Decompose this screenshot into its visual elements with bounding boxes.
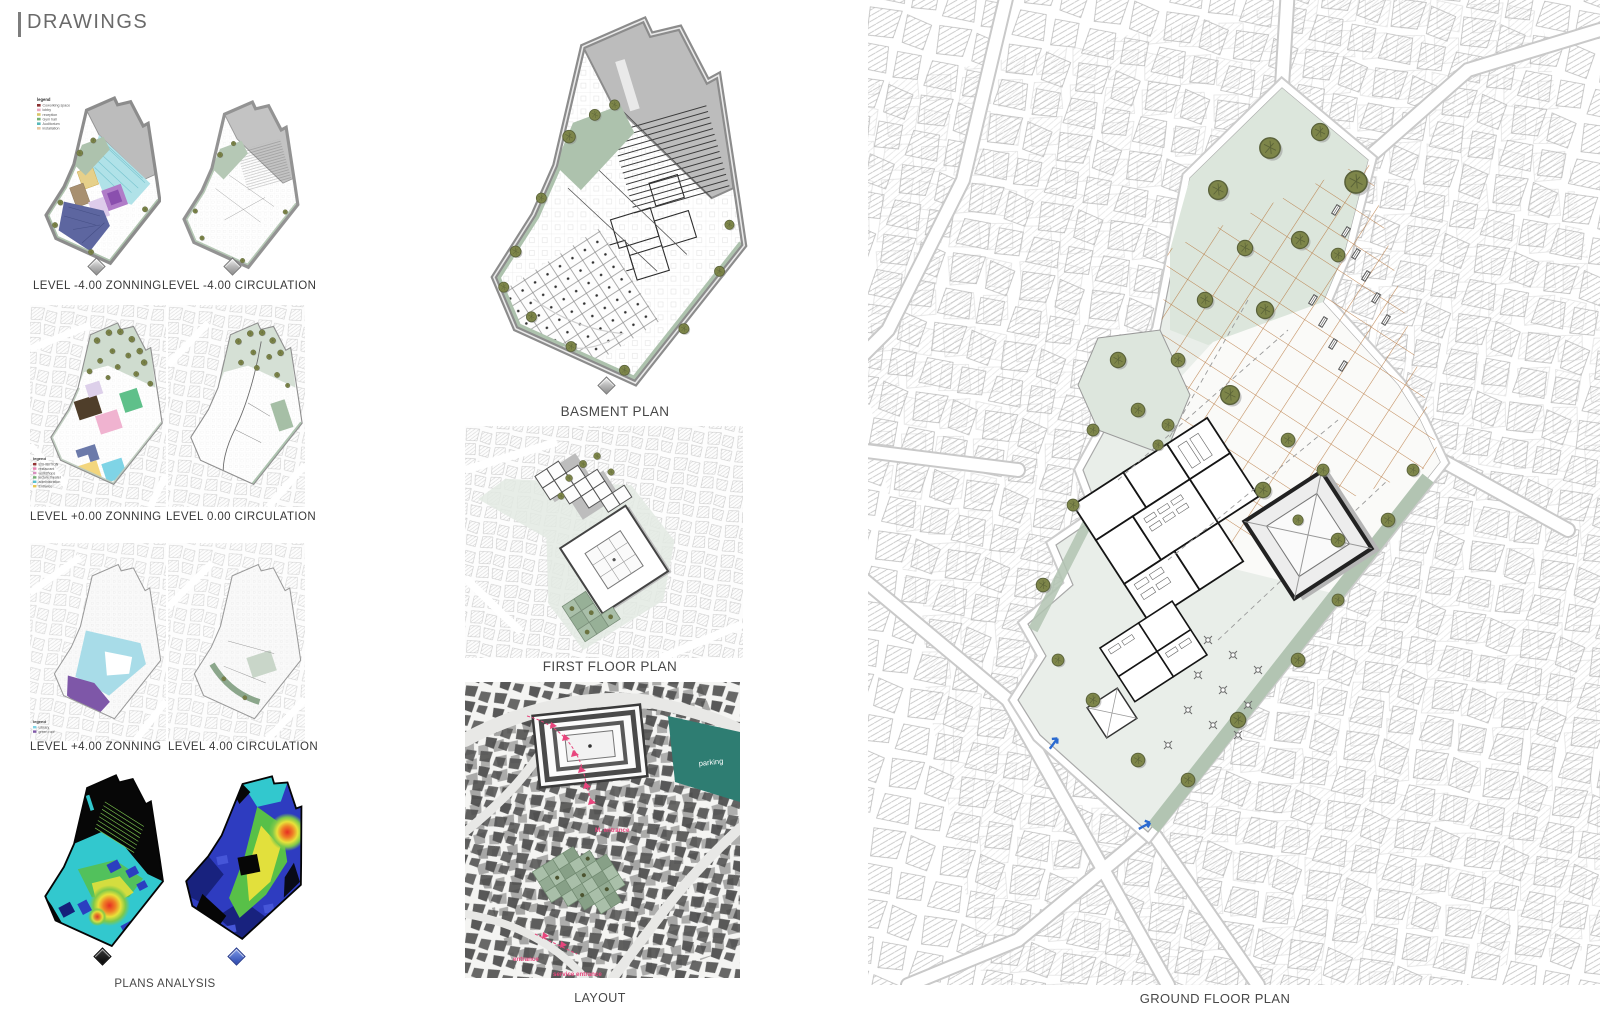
main-entrance-label: M. entrance: [595, 827, 630, 834]
legend-title: legend: [33, 456, 46, 461]
level-zero-circulation-plan: [168, 305, 305, 507]
caption-ground-floor-plan: GROUND FLOOR PLAN: [1080, 991, 1350, 1006]
legend-item-label: Entrance: [39, 485, 53, 489]
legend-chip: [37, 127, 41, 130]
legend-chip: [37, 104, 41, 107]
basement-plan: [468, 6, 758, 402]
level-minus4-circulation-plan: [163, 94, 301, 280]
level-minus4-zoning-plan: legend Coworking space lobby reception G…: [33, 88, 161, 280]
caption-layout: LAYOUT: [520, 991, 680, 1005]
legend-item-label: administration: [39, 480, 61, 484]
label-level-zero-circulation: LEVEL 0.00 CIRCULATION: [166, 511, 316, 523]
caption-plans-analysis: PLANS ANALYSIS: [60, 978, 270, 990]
legend-item-label: EXHIBITION: [39, 463, 59, 467]
caption-first-floor-plan: FIRST FLOOR PLAN: [470, 659, 750, 674]
title-bar-mark: [18, 12, 21, 37]
entrance-label: entrance: [513, 956, 539, 963]
level-plus4-zoning-plan: legend Library green roof: [30, 543, 166, 741]
legend-chip: [33, 481, 36, 483]
caption-basement-plan: BASMENT PLAN: [480, 404, 750, 419]
layout-plan: parking: [465, 682, 740, 978]
legend-chip: [37, 109, 41, 112]
analysis-heatmap-right: [178, 763, 303, 965]
label-level-minus4-circulation: LEVEL -4.00 CIRCULATION: [162, 280, 316, 292]
legend-item-label: lobby: [43, 108, 52, 112]
legend-chip: [33, 476, 36, 478]
presentation-board: DRAWINGS: [0, 0, 1600, 1029]
legend-chip: [33, 730, 36, 732]
ground-floor-plan: [868, 0, 1600, 985]
first-floor-plan: [465, 426, 743, 658]
legend-item-label: Gym hall: [43, 117, 57, 121]
legend-item-label: restaurant: [39, 467, 55, 471]
legend-minus4: legend Coworking space lobby reception G…: [37, 97, 70, 131]
legend-item-label: installation: [43, 127, 60, 131]
legend-chip: [37, 113, 41, 116]
legend-item-label: Auditorium: [43, 122, 60, 126]
label-level-plus4-circulation: LEVEL 4.00 CIRCULATION: [168, 741, 318, 753]
legend-chip: [33, 467, 36, 469]
legend-item-label: workshops: [39, 471, 56, 475]
legend-chip: [33, 472, 36, 474]
label-level-plus4-zoning: LEVEL +4.00 ZONNING: [30, 741, 162, 753]
page-title: DRAWINGS: [27, 11, 148, 34]
legend-chip: [33, 726, 36, 728]
legend-title: legend: [37, 97, 51, 102]
legend-item-label: Coworking space: [43, 104, 71, 108]
legend-item-label: reception: [43, 113, 58, 117]
analysis-heatmap-left: [35, 763, 165, 963]
legend-chip: [37, 122, 41, 125]
legend-chip: [37, 118, 41, 121]
legend-chip: [33, 485, 36, 487]
legend-item-label: lecture theater: [39, 476, 62, 480]
legend-chip: [33, 463, 36, 465]
legend-item-label: Library: [39, 726, 50, 730]
legend-item-label: green roof: [39, 730, 55, 734]
service-entrance-label: service entrance: [553, 971, 602, 978]
label-level-zero-zoning: LEVEL +0.00 ZONNING: [30, 511, 162, 523]
label-level-minus4-zoning: LEVEL -4.00 ZONNING: [33, 280, 162, 292]
level-plus4-circulation-plan: [168, 543, 305, 741]
courtyard-building: [533, 705, 648, 788]
legend-title: legend: [33, 719, 46, 724]
level-zero-zoning-plan: legend EXHIBITION restaurant workshops l…: [30, 305, 166, 507]
